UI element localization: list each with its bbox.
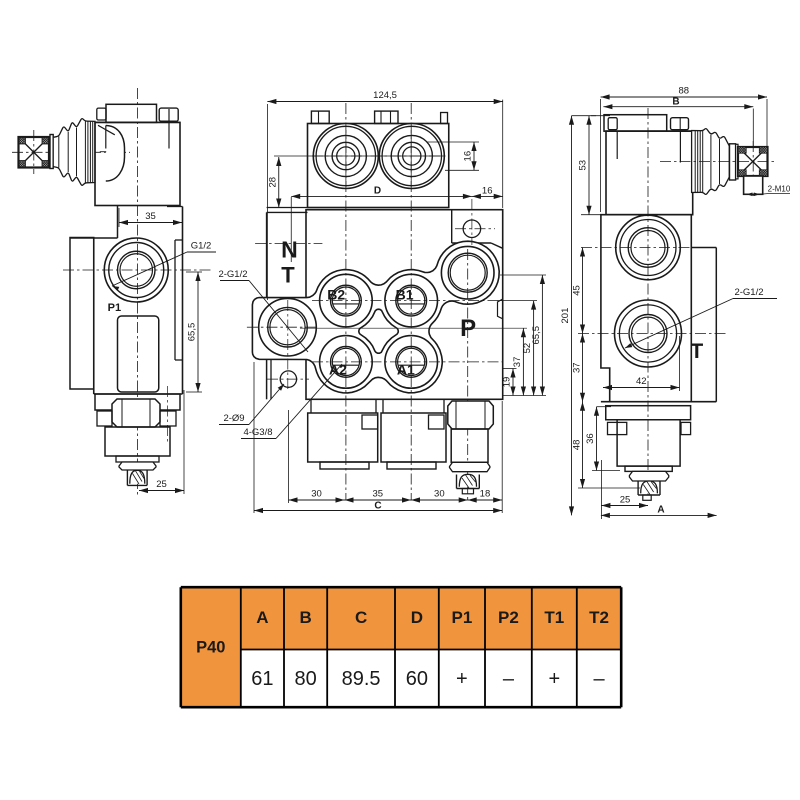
svg-text:A: A xyxy=(657,505,664,516)
svg-text:35: 35 xyxy=(145,211,156,222)
svg-text:A: A xyxy=(256,608,268,627)
svg-text:–: – xyxy=(593,668,605,690)
svg-text:G1/2: G1/2 xyxy=(191,241,212,252)
svg-text:89.5: 89.5 xyxy=(342,668,381,690)
svg-text:65,5: 65,5 xyxy=(531,326,542,345)
svg-text:C: C xyxy=(355,608,367,627)
svg-text:30: 30 xyxy=(434,489,445,500)
svg-text:P40: P40 xyxy=(196,639,225,657)
svg-text:53: 53 xyxy=(578,160,589,171)
svg-text:B: B xyxy=(672,97,679,108)
svg-text:61: 61 xyxy=(251,668,273,690)
svg-text:T1: T1 xyxy=(544,608,564,627)
svg-text:2-G1/2: 2-G1/2 xyxy=(734,287,763,298)
svg-text:37: 37 xyxy=(512,357,523,368)
svg-text:18: 18 xyxy=(480,489,491,500)
svg-text:88: 88 xyxy=(679,86,690,97)
svg-text:30: 30 xyxy=(311,489,322,500)
svg-text:65,5: 65,5 xyxy=(187,323,198,342)
svg-text:4-G3/8: 4-G3/8 xyxy=(243,427,272,438)
svg-text:A1: A1 xyxy=(397,361,415,377)
svg-text:28: 28 xyxy=(267,177,278,188)
svg-text:P1: P1 xyxy=(452,608,473,627)
svg-text:80: 80 xyxy=(294,668,316,690)
svg-text:T2: T2 xyxy=(589,608,609,627)
svg-text:201: 201 xyxy=(560,308,571,324)
svg-text:D: D xyxy=(374,186,381,197)
svg-text:2-M10: 2-M10 xyxy=(768,185,791,194)
svg-text:2-Ø9: 2-Ø9 xyxy=(223,413,244,424)
svg-text:B: B xyxy=(299,608,311,627)
svg-text:N: N xyxy=(281,237,298,263)
svg-text:16: 16 xyxy=(463,151,474,162)
svg-text:+: + xyxy=(548,668,560,690)
svg-text:42: 42 xyxy=(636,376,647,387)
svg-text:T: T xyxy=(281,262,295,287)
svg-text:124,5: 124,5 xyxy=(373,90,397,101)
svg-text:25: 25 xyxy=(156,479,167,490)
svg-text:2-G1/2: 2-G1/2 xyxy=(218,269,247,280)
svg-text:16: 16 xyxy=(482,186,493,197)
svg-text:+: + xyxy=(456,668,468,690)
svg-text:D: D xyxy=(411,608,423,627)
svg-text:P2: P2 xyxy=(498,608,519,627)
svg-text:48: 48 xyxy=(572,440,583,451)
svg-text:–: – xyxy=(503,668,515,690)
svg-text:60: 60 xyxy=(406,668,428,690)
svg-text:T: T xyxy=(690,340,703,363)
svg-text:P1: P1 xyxy=(108,302,121,314)
svg-text:35: 35 xyxy=(372,489,383,500)
svg-text:B2: B2 xyxy=(327,287,345,303)
svg-text:45: 45 xyxy=(572,285,583,296)
svg-text:25: 25 xyxy=(620,495,631,506)
svg-text:37: 37 xyxy=(572,362,583,373)
svg-text:19: 19 xyxy=(502,377,513,388)
svg-text:C: C xyxy=(374,501,381,512)
svg-text:36: 36 xyxy=(585,433,596,444)
